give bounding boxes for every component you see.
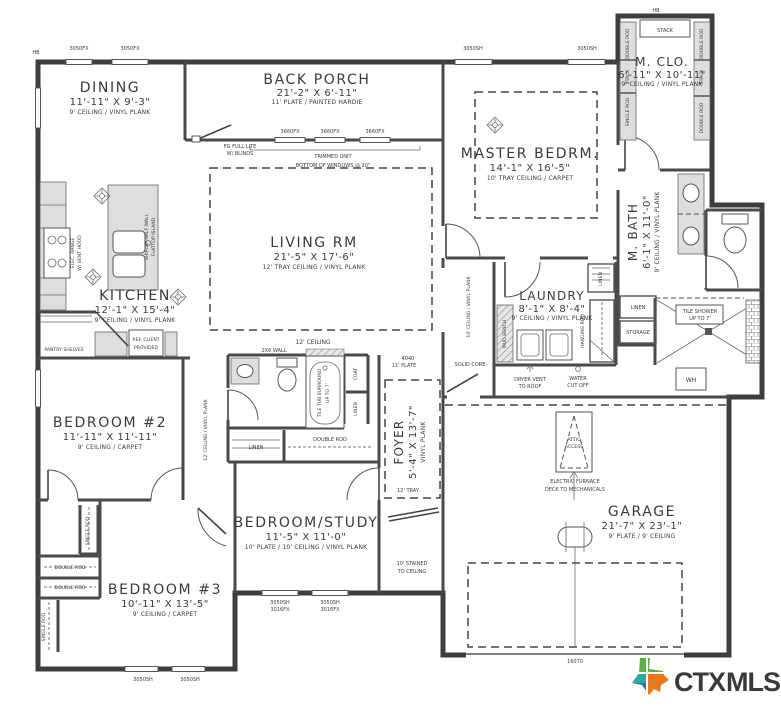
window-label: 3050FX [69,46,89,52]
room-label-dining: DINING 11'-11" X 9'-3" 9' CEILING / VINY… [70,80,152,116]
linen-label: LINEN [353,402,359,416]
living-dims: 21'-5" X 17'-6" [274,252,355,263]
window-label: 3050SH [577,46,597,52]
foyer-name: FOYER [392,420,406,465]
elec-range-label: ELEC. RANGE [70,238,76,269]
window-label: 3660FX [320,129,340,135]
single-rod-label: SINGLE ROD [41,612,47,641]
water-cut-off-label: CUT OFF [567,383,589,389]
mud-bench-label: MUD BENCH [502,320,508,348]
room-label-kitchen: KITCHEN 12'-1" X 15'-4" 9' CEILING / VIN… [95,288,177,324]
sink [237,365,253,378]
linen-label: LINEN [631,305,646,311]
hall-ceiling-label: 10' CEILING / VINYL PLANK [466,275,472,337]
window-label: 3050SH [320,600,340,606]
bedroom-study-note: 10' PLATE / 10' CEILING / VINYL PLANK [245,544,368,551]
bedroom3-dims: 10'-11" X 13'-5" [121,599,209,610]
stack-label: STACK [699,69,705,85]
linen-label: LINEN [249,445,264,451]
living-name: LIVING RM [270,235,358,251]
attic-access-label: ATTIC [568,437,581,443]
hose-bib-label: HB [652,8,660,14]
linen-label: LINEN [598,272,604,286]
laundry-name: LAUNDRY [519,289,584,303]
fg-door-label: W/ BLINDS [227,151,254,157]
master-bath-note: 9' CEILING / VINYL PLANK [654,191,661,273]
floor-plan-page: DINING 11'-11" X 9'-3" 9' CEILING / VINY… [0,0,781,713]
attic-access-label: ACCESS [565,444,583,450]
back-porch-dims: 21'-2" X 6'-11" [277,88,358,99]
ref-label: PROVIDED [134,345,158,351]
ctxmls-logo: CTX MLS [632,658,780,697]
room-label-master-bath: M. BATH 6'-1" X 11'-0" 9' CEILING / VINY… [626,191,661,273]
double-rod-label: DOUBLE ROD [699,28,705,59]
bedroom2-note: 9' CEILING / CARPET [78,444,143,451]
toilet-bowl [724,227,746,253]
hose-bib-label: HB [32,50,40,56]
kitchen-fixtures [40,182,177,356]
room-label-bedroom2: BEDROOM #2 11'-11" X 11'-11" 9' CEILING … [53,415,167,451]
hall-bath-fixtures [231,349,372,448]
2x6-wall-label: 2X6 WALL [261,348,286,354]
fg-door-label: FG FULL LITE [224,144,257,150]
garage-dims: 21'-7" X 23'-1" [602,521,683,532]
plate-11-label: 11' PLATE [392,363,417,369]
bedroom-study-name: BEDROOM/STUDY [234,515,379,531]
island-label: SHIPLAP HALF WALL [144,213,150,260]
tile-tub-label: UP TO 7' [325,383,331,403]
sink [683,184,699,202]
single-rod-label: SINGLE ROD [625,97,631,126]
electric-furnace-label: ELECTRIC FURNACE [550,479,599,485]
water-cut-off-label: WATER [569,376,587,382]
dining-note: 9' CEILING / VINYL PLANK [70,109,152,116]
stack-label: STACK [625,69,631,85]
master-closet-note: 9' CEILING / VINYL PLANK [622,81,704,88]
tile-shower-label: UP TO 7' [689,316,710,322]
double-rod-label: DOUBLE ROD [55,585,86,591]
room-label-foyer: FOYER 5'-4" X 13'-7" VINYL PLANK [392,405,427,479]
window-label: 3050SH [133,677,153,683]
pantry-shelves-label: PANTRY SHELVES [44,347,83,353]
refrigerator [129,330,163,356]
kitchen-dims: 12'-1" X 15'-4" [95,305,176,316]
room-label-master-bedroom: MASTER BEDRM. 14'-1" X 16'-5" 10' TRAY C… [461,146,599,182]
back-porch-name: BACK PORCH [263,72,370,88]
master-closet-name: M. CLO. [635,55,689,69]
tile-tub-label: TILE TUB SURROUND [317,368,323,418]
ceiling-12-label: 12' CEILING [295,339,331,346]
floor-plan-drawing: DINING 11'-11" X 9'-3" 9' CEILING / VINY… [0,0,781,713]
dryer-vent-label: DRYER VENT [514,377,547,383]
double-rod-label: DOUBLE ROD [625,28,631,59]
single-rod-label: SINGLE ROD [85,516,91,545]
master-bedroom-dims: 14'-1" X 16'-5" [490,163,571,174]
texas-icon [632,658,669,695]
master-closet-dims: 6'-11" X 10'-11" [618,70,706,81]
toilet-bowl [278,369,296,391]
master-bath-name: M. BATH [626,203,640,261]
island-sink [113,231,145,253]
coat-label: COAT [353,368,359,381]
back-porch-note: 11' PLATE / PAINTED HARDIE [272,99,363,106]
logo-ctx-text: CTX [674,667,726,697]
bedroom-study-dims: 11'-5" X 11'-0" [266,532,347,543]
bedroom3-name: BEDROOM #3 [108,582,222,598]
master-bedroom-note: 10' TRAY CEILING / CARPET [487,175,574,182]
foyer-note: VINYL PLANK [420,421,427,463]
master-bedroom-name: MASTER BEDRM. [461,146,599,162]
bottom-of-windows-label: BOTTOM OF WINDOWS @ 20" [296,163,370,169]
bedroom2-dims: 11'-11" X 11'-11" [63,432,158,443]
window-label: 4040 [402,356,415,362]
bedroom3-note: 9' CEILING / CARPET [133,611,198,618]
room-label-bedroom-study: BEDROOM/STUDY 11'-5" X 11'-0" 10' PLATE … [234,515,379,551]
dining-name: DINING [80,80,140,96]
toilet-tank [277,358,297,367]
room-label-back-porch: BACK PORCH 21'-2" X 6'-11" 11' PLATE / P… [263,72,370,106]
stained-ceiling-label: 10' STAINED [397,561,428,567]
tray-12-label: 12' TRAY [397,488,420,494]
double-rod-label: DOUBLE ROD [55,565,86,571]
hall-ceiling-label: 12' CEILING / VINYL PLANK [203,398,209,460]
logo-mls-text: MLS [726,667,780,697]
toilet-tank [722,214,748,224]
window-label: 3050SH [463,46,483,52]
room-label-living: LIVING RM 21'-5" X 17'-6" 12' TRAY CEILI… [263,235,367,271]
stack-label: STACK [657,28,674,34]
solid-core-label: SOLID CORE [455,362,486,368]
electric-furnace-label: DECK TO MECHANICALS [545,487,605,493]
shower-seat [746,300,760,363]
tile-shower-label: TILE SHOWER [682,309,718,315]
living-note: 12' TRAY CEILING / VINYL PLANK [263,264,367,271]
room-label-bedroom3: BEDROOM #3 10'-11" X 13'-5" 9' CEILING /… [108,582,222,618]
elec-range-label: W/ VENT HOOD [77,235,83,271]
sink [683,227,699,245]
window-label: 3660FX [365,129,385,135]
room-label-garage: GARAGE 21'-7" X 23'-1" 9' PLATE / 9' CEI… [602,504,683,540]
bedroom2-name: BEDROOM #2 [53,415,167,431]
window-label: 3016FX [320,607,340,613]
island-label: FLATTOP ISLAND [151,217,157,256]
kitchen-note: 9' CEILING / VINYL PLANK [95,317,177,324]
double-rod-label: DOUBLE ROD [699,102,705,133]
trimmed-unit-bracket [250,146,420,150]
ref-label: REF. CLIENT [132,337,159,343]
storage-label: STORAGE [626,330,650,336]
garage-door-label: 16070 [567,659,583,665]
double-rod-label: DOUBLE ROD [313,437,347,443]
garage-door-opener [558,527,592,547]
trimmed-unit-label: TRIMMED UNIT [313,154,352,160]
stained-ceiling-label: TO CEILING [397,569,427,575]
window-label: 3660FX [280,129,300,135]
master-bath-dims: 6'-1" X 11'-0" [642,195,653,269]
water-heater-label: WH [686,377,696,384]
window-label: 3050SH [270,600,290,606]
hanging-rod-label: HANGING ROD [580,314,586,348]
window-label: 3050FX [120,46,140,52]
dining-dims: 11'-11" X 9'-3" [70,97,151,108]
window-label: 3016FX [270,607,290,613]
kitchen-name: KITCHEN [99,288,171,304]
laundry-dims: 8'-1" X 8'-4" [518,304,585,315]
window-label: 3050SH [180,677,200,683]
garage-name: GARAGE [608,504,676,520]
dryer-vent-label: TO ROOF [518,384,542,390]
range [44,228,70,278]
foyer-dims: 5'-4" X 13'-7" [408,405,419,479]
garage-note: 9' PLATE / 9' CEILING [609,533,676,540]
